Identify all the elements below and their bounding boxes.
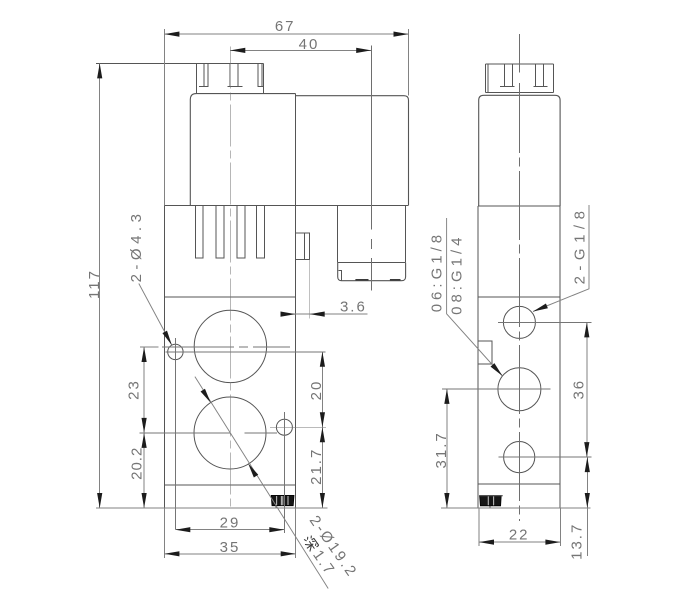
svg-text:2-Ø4.3: 2-Ø4.3 — [128, 210, 145, 283]
svg-text:36: 36 — [571, 379, 588, 400]
svg-text:35: 35 — [220, 539, 241, 556]
svg-text:2-G1/8: 2-G1/8 — [572, 206, 589, 285]
svg-text:13.7: 13.7 — [569, 523, 586, 560]
svg-text:23: 23 — [126, 379, 143, 400]
svg-text:20: 20 — [308, 380, 325, 401]
svg-text:117: 117 — [86, 269, 103, 299]
svg-text:40: 40 — [299, 36, 320, 53]
svg-text:08:G1/4: 08:G1/4 — [449, 234, 466, 315]
svg-text:21.7: 21.7 — [308, 448, 325, 485]
svg-text:3.6: 3.6 — [340, 298, 367, 315]
svg-text:29: 29 — [220, 515, 241, 532]
svg-text:67: 67 — [275, 18, 296, 35]
svg-text:31.7: 31.7 — [433, 431, 450, 468]
svg-text:20.2: 20.2 — [128, 447, 145, 480]
svg-text:22: 22 — [509, 527, 530, 544]
svg-text:06:G1/8: 06:G1/8 — [429, 231, 446, 312]
